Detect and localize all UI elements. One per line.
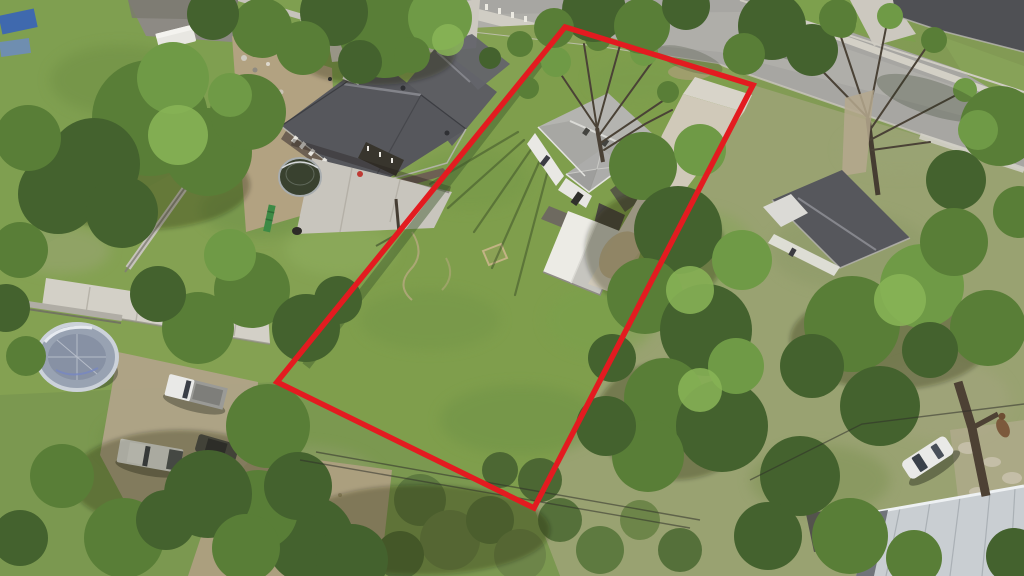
aerial-photo-canvas (0, 0, 1024, 576)
roof-vent (401, 86, 406, 91)
roof-vent (445, 131, 450, 136)
enclosed-trampoline (279, 158, 321, 196)
grill (292, 227, 302, 235)
round-trampoline (37, 324, 118, 390)
aerial-photo (0, 0, 1024, 576)
red-item (357, 171, 363, 177)
